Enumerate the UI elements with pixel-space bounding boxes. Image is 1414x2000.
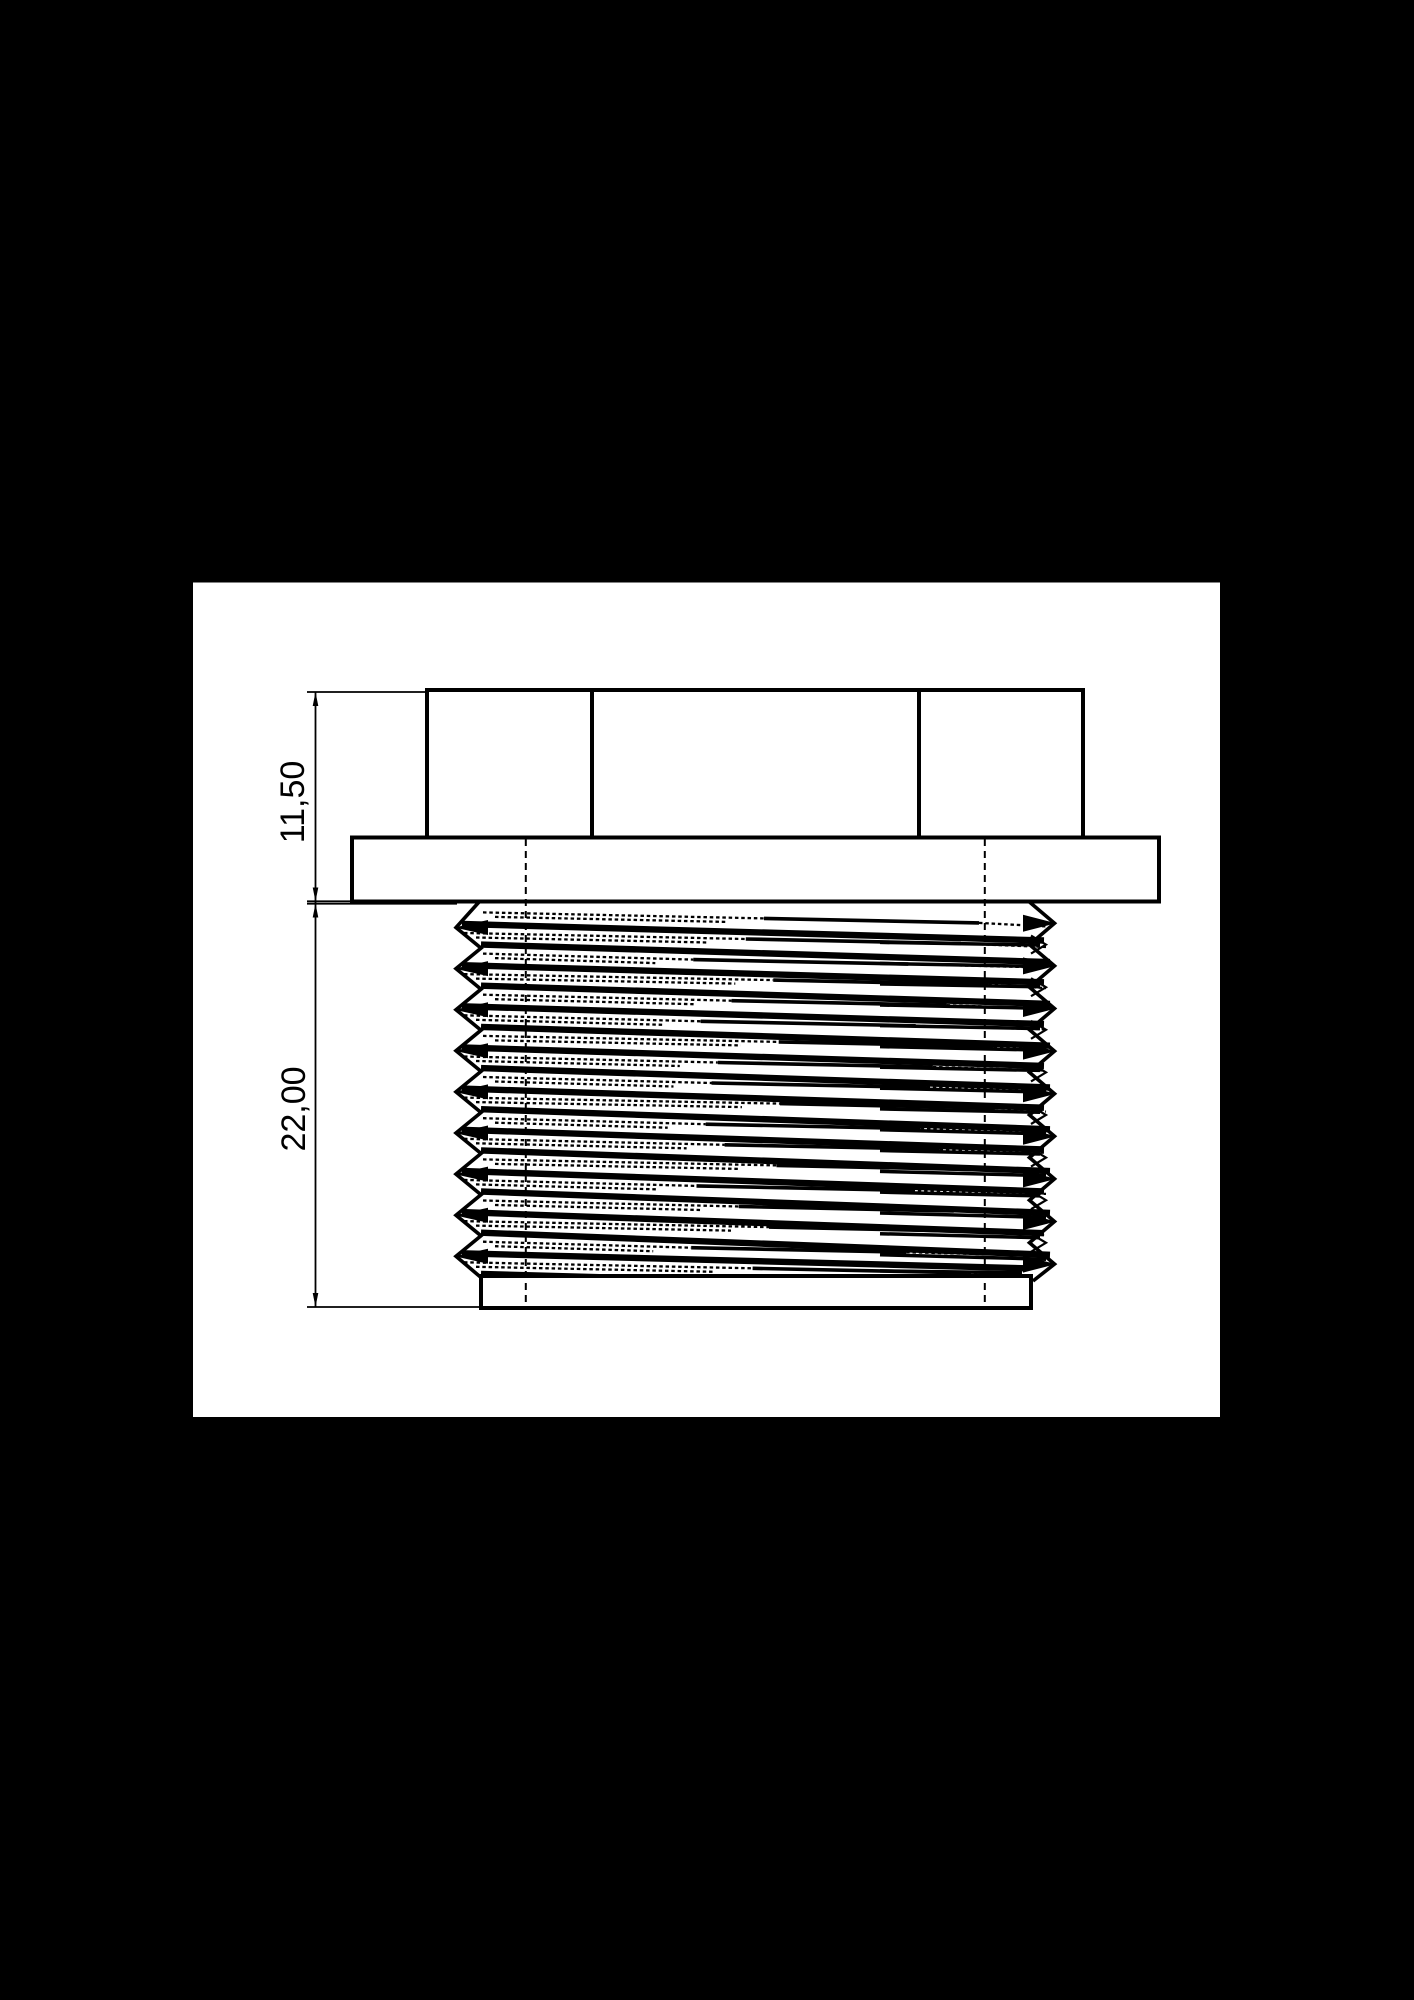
svg-text:11,50: 11,50 [274,761,312,844]
svg-text:22,00: 22,00 [275,1066,313,1151]
